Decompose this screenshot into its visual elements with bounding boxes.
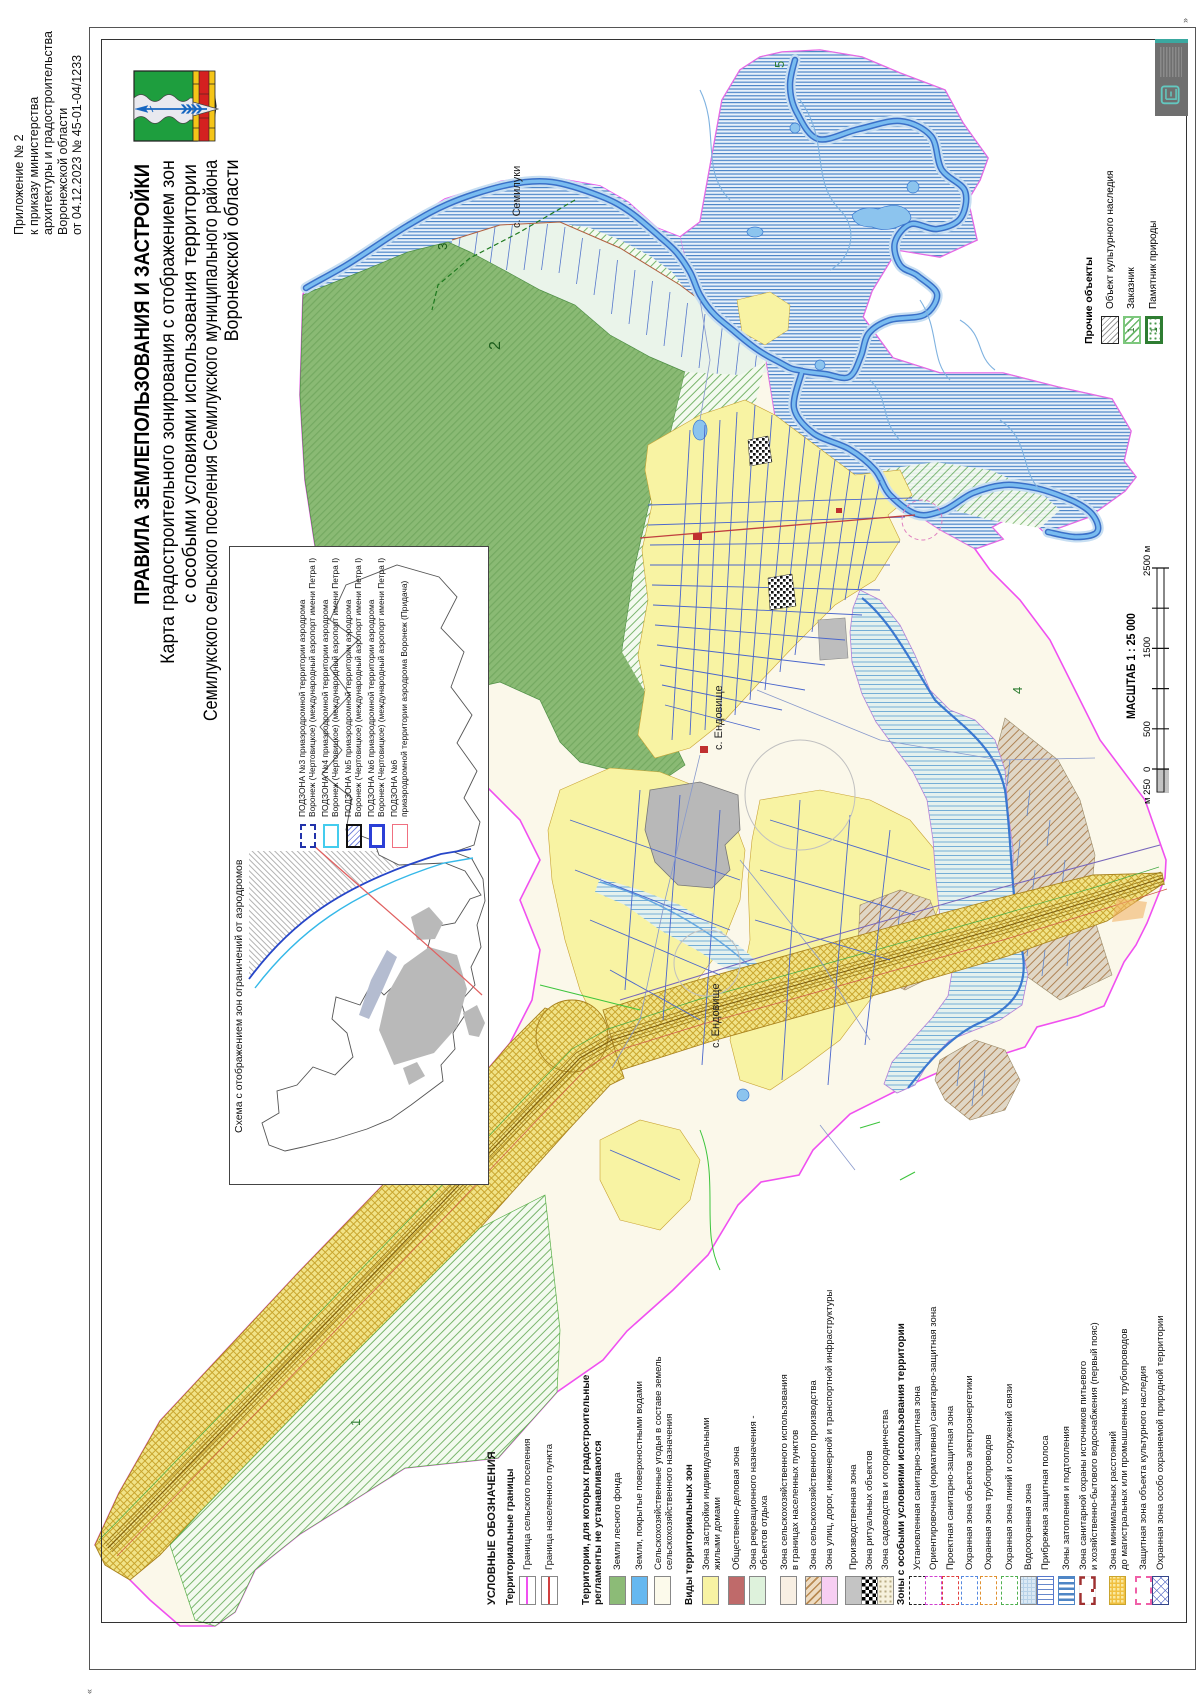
svg-text:500: 500 (1142, 721, 1153, 737)
svg-text:м 250: м 250 (1142, 779, 1153, 804)
svg-text:1500: 1500 (1142, 637, 1153, 658)
svg-text:2500 м: 2500 м (1142, 546, 1153, 576)
svg-text:0: 0 (1142, 767, 1153, 772)
